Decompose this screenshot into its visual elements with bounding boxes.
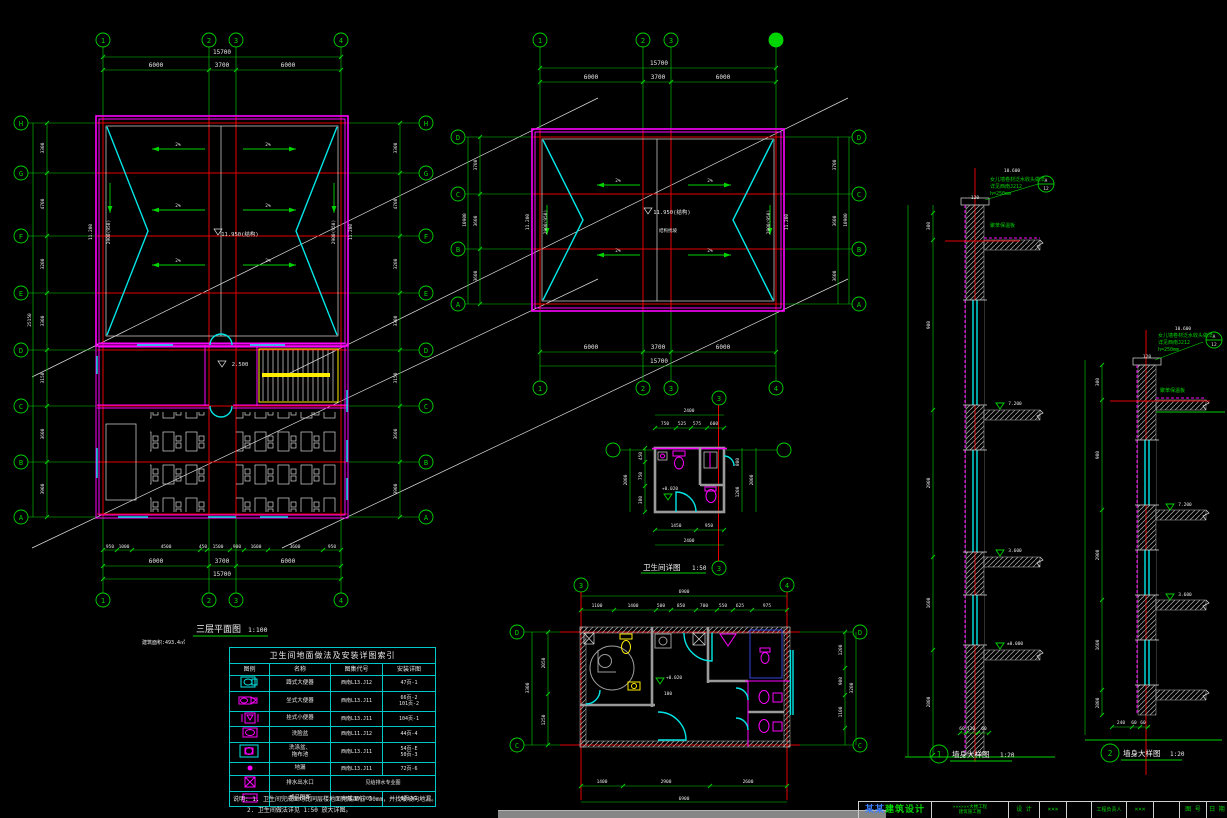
svg-text:6000: 6000 [584, 74, 599, 81]
svg-text:2800: 2800 [926, 696, 932, 707]
svg-text:三层平面图: 三层平面图 [196, 624, 241, 635]
svg-text:G: G [19, 170, 23, 178]
svg-text:2: 2 [641, 385, 645, 393]
roof-valley-right [296, 127, 337, 335]
svg-text:2400: 2400 [684, 538, 695, 544]
svg-text:575: 575 [693, 421, 701, 427]
svg-text:1000: 1000 [119, 544, 130, 550]
svg-text:3700: 3700 [215, 62, 230, 69]
svg-text:墙身大样图: 墙身大样图 [1123, 748, 1161, 758]
svg-text:120: 120 [971, 195, 979, 201]
svg-text:2%: 2% [265, 203, 271, 209]
svg-text:1:100: 1:100 [248, 626, 268, 634]
svg-text:3700: 3700 [473, 159, 479, 170]
svg-text:B: B [19, 459, 23, 467]
drain-outlet-icon [238, 776, 262, 788]
small-detail-title: 卫生间详图 1:50 [641, 562, 707, 573]
svg-text:3200: 3200 [849, 682, 855, 693]
svg-text:525: 525 [678, 421, 686, 427]
mid-plan-roof: 2% 2% 2% 2% 11.950(结构) 结构找坡 11.200 2900(… [525, 129, 790, 311]
svg-text:4: 4 [339, 597, 343, 605]
svg-text:女儿墙卷材泛水收头做法: 女儿墙卷材泛水收头做法 [990, 176, 1045, 183]
svg-text:3: 3 [234, 597, 238, 605]
svg-text:2400: 2400 [684, 408, 695, 414]
svg-text:4700: 4700 [393, 198, 399, 209]
svg-text:1200: 1200 [838, 644, 844, 655]
legend-note-2: 2. 卫生间做法详见 1:50 放大详图。 [247, 805, 352, 814]
svg-text:750: 750 [638, 472, 644, 480]
svg-text:B: B [456, 246, 460, 254]
wall-section-1: 7.200 3.600 ±0.000 10.600 女儿墙卷材泛水收头做法 详见… [905, 168, 1055, 763]
svg-text:2900(950): 2900(950) [543, 210, 549, 234]
svg-text:900: 900 [233, 544, 241, 550]
left-plan-dims-left: 3300 4700 3200 3300 3150 3600 3900 25150 [27, 121, 49, 519]
svg-text:2: 2 [1108, 749, 1113, 758]
svg-text:h=250mm: h=250mm [1158, 347, 1179, 353]
svg-text:3200: 3200 [393, 258, 399, 269]
legend-header: 图例 [230, 664, 270, 676]
svg-text:2900: 2900 [1095, 549, 1101, 560]
left-plan-floor: 2.500 [96, 334, 348, 518]
svg-text:4700: 4700 [40, 198, 46, 209]
svg-text:H: H [19, 120, 23, 128]
svg-text:2900(950): 2900(950) [766, 210, 772, 234]
svg-text:聚苯保温板: 聚苯保温板 [990, 222, 1015, 229]
titleblock-cell: ××× [1127, 802, 1154, 818]
svg-text:6000: 6000 [281, 558, 296, 565]
stair [259, 349, 338, 402]
company-logo: 某某建筑设计 [859, 802, 932, 818]
svg-text:10900: 10900 [843, 213, 849, 227]
legend-row: 排水出水口 见给排水专业图 [230, 776, 436, 792]
svg-text:900: 900 [1095, 451, 1101, 459]
level-symbol [644, 208, 652, 214]
project-name: ××××××大楼工程 建筑施工图 [932, 802, 1009, 818]
svg-text:h=250mm: h=250mm [990, 191, 1011, 197]
svg-text:1600: 1600 [251, 544, 262, 550]
floor-slabs [945, 238, 1043, 660]
svg-text:D: D [19, 347, 23, 355]
svg-text:2900: 2900 [926, 477, 932, 488]
walls [655, 448, 724, 512]
svg-text:E: E [424, 290, 428, 298]
svg-text:3: 3 [717, 395, 721, 403]
svg-text:2050: 2050 [541, 657, 547, 668]
svg-text:2: 2 [207, 597, 211, 605]
small-detail-dims: 2400 750 525 575 600 450 750 380 2000 80… [623, 408, 756, 545]
left-plan-dims-bottom: 950 1000 4500 450 1500 900 1600 3600 950… [101, 544, 343, 581]
svg-text:C: C [515, 742, 519, 750]
left-plan-dims-top: 15700 6000 3700 6000 [101, 49, 343, 72]
left-plan-roof: 2% 2% 2% 2% 2% 2% 11.950(结构) 11.200 2900… [88, 116, 354, 346]
floor-drain-icon [238, 763, 262, 773]
titleblock-cell: 图 号 [1180, 802, 1207, 818]
svg-text:F: F [424, 233, 428, 241]
titleblock-cell: 日 期 [1207, 802, 1227, 818]
svg-text:2900(950): 2900(950) [331, 220, 337, 244]
svg-text:2900: 2900 [661, 779, 672, 785]
roof-valley-left [107, 127, 148, 335]
legend-header: 图集代号 [331, 664, 383, 676]
svg-text:3150: 3150 [40, 372, 46, 383]
svg-text:C: C [456, 191, 460, 199]
svg-text:3700: 3700 [832, 159, 838, 170]
svg-text:3150: 3150 [393, 372, 399, 383]
title-block: 某某建筑设计 ××××××大楼工程 建筑施工图 设 计 ××× 工程负责人 ××… [858, 801, 1227, 818]
legend-row: 蹲式大便器 西南L13.J12 47页-1 [230, 676, 436, 692]
sheet-border-band [498, 810, 886, 818]
legend-row: 洗脸盆 西南L11.J12 44页-4 [230, 727, 436, 743]
svg-text:1250: 1250 [541, 714, 547, 725]
titleblock-cell [1154, 802, 1180, 818]
legend-title: 卫生间地面做法及安装详图索引 [230, 648, 436, 664]
svg-text:120: 120 [1143, 354, 1151, 360]
svg-text:3600: 3600 [473, 215, 479, 226]
svg-text:1450: 1450 [671, 523, 682, 529]
svg-text:850: 850 [677, 603, 685, 609]
svg-text:12: 12 [1043, 186, 1049, 192]
svg-text:2%: 2% [175, 258, 181, 264]
svg-text:A: A [424, 514, 429, 522]
wc [759, 720, 769, 733]
svg-text:B: B [424, 459, 428, 467]
svg-text:2.500: 2.500 [232, 362, 249, 368]
svg-text:2%: 2% [175, 142, 181, 148]
cad-viewport: 1 2 3 4 1 2 3 4 H G F E D C B A H G F E [0, 0, 1227, 818]
level-symbol [656, 678, 664, 684]
floor-slabs [1110, 398, 1225, 700]
svg-text:3: 3 [669, 385, 673, 393]
svg-text:625: 625 [736, 603, 744, 609]
svg-text:卫生间详图: 卫生间详图 [643, 562, 681, 572]
svg-text:D: D [858, 629, 862, 637]
legend-header: 安装详图 [383, 664, 436, 676]
svg-text:6000: 6000 [149, 62, 164, 69]
svg-text:100: 100 [664, 691, 672, 697]
legend-header: 名称 [270, 664, 331, 676]
svg-text:750: 750 [661, 421, 669, 427]
svg-text:3300: 3300 [40, 142, 46, 153]
svg-text:11.200: 11.200 [784, 214, 790, 231]
mid-plan: 1 2 3 4 1 2 3 4 D C B A D C B A 15700 60… [451, 33, 866, 395]
wheelchair-symbol [590, 646, 634, 690]
svg-text:60: 60 [1140, 720, 1146, 726]
svg-text:3: 3 [669, 37, 673, 45]
svg-text:+0.020: +0.020 [666, 675, 683, 681]
svg-text:3.600: 3.600 [1008, 548, 1022, 554]
svg-text:7.200: 7.200 [1178, 502, 1192, 508]
svg-text:1400: 1400 [628, 603, 639, 609]
door-arcs [586, 633, 748, 740]
desk-rows-right [236, 412, 336, 512]
svg-text:±0.000: ±0.000 [1007, 641, 1024, 647]
svg-text:H: H [424, 120, 428, 128]
toilet-icon [237, 693, 263, 707]
desk-rows-left [150, 412, 207, 512]
svg-text:1: 1 [538, 385, 542, 393]
svg-text:A: A [1213, 334, 1216, 340]
svg-text:2800: 2800 [1095, 697, 1101, 708]
svg-text:500: 500 [657, 603, 665, 609]
titleblock-cell: 设 计 [1009, 802, 1040, 818]
svg-text:2: 2 [641, 37, 645, 45]
svg-text:6000: 6000 [584, 344, 599, 351]
svg-text:950: 950 [106, 544, 114, 550]
svg-text:3.600: 3.600 [1178, 592, 1192, 598]
svg-text:11.200: 11.200 [525, 214, 531, 231]
left-plan-grid-bubbles-right: H G F E D C B A [419, 116, 433, 524]
svg-text:2000: 2000 [623, 474, 629, 485]
svg-text:120: 120 [967, 726, 975, 732]
svg-text:3600: 3600 [393, 428, 399, 439]
svg-text:2%: 2% [615, 178, 621, 184]
svg-text:1400: 1400 [597, 779, 608, 785]
svg-text:3: 3 [579, 582, 583, 590]
legend-row: 挂式小便器 西南L13.J11 104页-1 [230, 711, 436, 727]
svg-text:3700: 3700 [651, 344, 666, 351]
svg-text:女儿墙卷材泛水收头做法: 女儿墙卷材泛水收头做法 [1158, 332, 1213, 339]
cad-drawing: 1 2 3 4 1 2 3 4 H G F E D C B A H G F E [0, 0, 1227, 818]
svg-text:3600: 3600 [40, 428, 46, 439]
svg-text:F: F [19, 233, 23, 241]
svg-text:1100: 1100 [838, 706, 844, 717]
svg-text:900: 900 [838, 677, 844, 685]
legend-row: 洗涤盆、拖布池 西南L13.J11 54页-E50页-3 [230, 742, 436, 762]
svg-text:11.950(结构): 11.950(结构) [653, 208, 691, 216]
svg-text:950: 950 [328, 544, 336, 550]
mop-pool-icon [237, 744, 263, 758]
svg-text:1:50: 1:50 [692, 565, 707, 572]
legend-note-1: 说明: 1. 卫生间完成面均比同层楼地面完成面低 30mm，并找坡坡向地漏。 [233, 794, 437, 803]
svg-text:15700: 15700 [650, 358, 668, 365]
svg-text:450: 450 [638, 452, 644, 460]
titleblock-cell: 工程负责人 [1092, 802, 1127, 818]
svg-text:4: 4 [774, 37, 778, 45]
left-plan-title: 三层平面图 1:100 建筑面积:493.4㎡ [142, 624, 268, 646]
small-detail: 3 3 +0.020 2400 750 [606, 391, 791, 575]
svg-text:2000: 2000 [749, 474, 755, 485]
svg-text:10.600: 10.600 [1004, 168, 1021, 174]
svg-text:11.200: 11.200 [348, 224, 354, 241]
svg-text:2%: 2% [615, 248, 621, 254]
svg-text:D: D [515, 629, 519, 637]
door-arc [676, 492, 696, 512]
svg-text:3300: 3300 [40, 315, 46, 326]
svg-text:7.200: 7.200 [1008, 401, 1022, 407]
svg-text:6000: 6000 [149, 558, 164, 565]
svg-text:A: A [456, 301, 461, 309]
legend-row: 坐式大便器 西南L13.J11 66页-2101页-2 [230, 691, 436, 711]
svg-text:1500: 1500 [213, 544, 224, 550]
titleblock-cell: ××× [1040, 802, 1067, 818]
titleblock-cell [1067, 802, 1092, 818]
svg-text:A: A [857, 301, 862, 309]
svg-text:C: C [857, 191, 861, 199]
svg-text:详见西南J212: 详见西南J212 [1158, 339, 1190, 346]
svg-text:D: D [857, 134, 861, 142]
svg-text:3300: 3300 [393, 315, 399, 326]
left-plan: 1 2 3 4 1 2 3 4 H G F E D C B A H G F E [14, 33, 433, 646]
svg-text:6000: 6000 [716, 344, 731, 351]
svg-text:11.950(结构): 11.950(结构) [221, 230, 259, 238]
fixtures [584, 630, 782, 740]
svg-text:700: 700 [700, 603, 708, 609]
svg-text:2%: 2% [265, 258, 271, 264]
svg-text:C: C [19, 403, 23, 411]
svg-text:25150: 25150 [27, 313, 33, 327]
svg-text:900: 900 [926, 321, 932, 329]
svg-text:3700: 3700 [651, 74, 666, 81]
roof-slope-arrows: 2% 2% 2% 2% 2% 2% [108, 142, 337, 267]
window [791, 650, 794, 715]
level-symbol [218, 361, 226, 367]
left-plan-grid-bubbles-bottom: 1 2 3 4 [96, 593, 348, 607]
svg-text:6000: 6000 [281, 62, 296, 69]
svg-text:2900(950): 2900(950) [106, 220, 112, 244]
svg-text:A: A [1045, 178, 1048, 184]
svg-text:240: 240 [1117, 720, 1125, 726]
svg-text:10900: 10900 [462, 213, 468, 227]
svg-text:550: 550 [719, 603, 727, 609]
svg-text:1100: 1100 [592, 603, 603, 609]
svg-text:6900: 6900 [679, 796, 690, 802]
fixture-legend-table: 卫生间地面做法及安装详图索引 图例 名称 图集代号 安装详图 蹲式大便器 西南L… [229, 647, 435, 807]
svg-text:2%: 2% [265, 142, 271, 148]
svg-text:C: C [858, 742, 862, 750]
svg-text:3200: 3200 [40, 258, 46, 269]
svg-text:3600: 3600 [473, 270, 479, 281]
svg-text:15700: 15700 [213, 49, 231, 56]
svg-text:15700: 15700 [650, 60, 668, 67]
svg-text:300: 300 [1095, 378, 1101, 386]
svg-text:3600: 3600 [832, 215, 838, 226]
svg-text:B: B [857, 246, 861, 254]
svg-text:聚苯保温板: 聚苯保温板 [1160, 387, 1185, 394]
svg-text:800: 800 [735, 458, 741, 466]
svg-text:D: D [456, 134, 460, 142]
big-detail: 3 4 D C D C [510, 578, 867, 802]
svg-text:2: 2 [207, 37, 211, 45]
left-plan-grid-bubbles-left: H G F E D C B A [14, 116, 28, 524]
urinal-icon [238, 712, 262, 724]
squat-toilet-icon [238, 676, 262, 688]
svg-text:E: E [19, 290, 23, 298]
washbasin-icon [238, 727, 262, 739]
svg-text:2%: 2% [707, 178, 713, 184]
svg-text:2%: 2% [707, 248, 713, 254]
fixtures [658, 451, 734, 512]
roof-valley-left [543, 140, 583, 300]
section2-title: 2 墙身大样图 1:20 [1101, 744, 1185, 762]
drain-symbol [720, 634, 736, 646]
svg-text:975: 975 [763, 603, 771, 609]
svg-text:+0.020: +0.020 [662, 486, 679, 492]
left-plan-grid-bubbles-top: 1 2 3 4 [96, 33, 348, 47]
svg-text:3900: 3900 [40, 483, 46, 494]
svg-text:1600: 1600 [1095, 639, 1101, 650]
svg-text:300: 300 [926, 222, 932, 230]
door-arc [724, 456, 734, 466]
svg-text:60: 60 [1131, 720, 1137, 726]
left-plan-dims-right: 3300 4700 3200 3300 3150 3600 3900 [393, 121, 402, 519]
svg-text:6000: 6000 [716, 74, 731, 81]
legend-row: 地漏 西南L13.J11 72页-6 [230, 762, 436, 776]
svg-text:11.200: 11.200 [88, 224, 94, 241]
wall-section-2: 7.200 3.600 10.600 女儿墙卷材泛水收头做法 详见西南J212 … [1085, 326, 1225, 775]
svg-text:3: 3 [717, 565, 721, 573]
svg-text:G: G [424, 170, 428, 178]
svg-text:D: D [424, 347, 428, 355]
windows [1135, 440, 1159, 685]
svg-text:3: 3 [234, 37, 238, 45]
svg-text:3700: 3700 [215, 558, 230, 565]
svg-text:4: 4 [774, 385, 778, 393]
svg-text:1200: 1200 [735, 486, 741, 497]
level-markers: 7.200 3.600 ±0.000 [996, 401, 1023, 649]
svg-text:2600: 2600 [743, 779, 754, 785]
svg-text:1600: 1600 [926, 597, 932, 608]
svg-text:3600: 3600 [832, 270, 838, 281]
svg-text:4: 4 [785, 582, 789, 590]
wc [759, 691, 769, 704]
svg-text:10.600: 10.600 [1175, 326, 1192, 332]
svg-text:1:20: 1:20 [1000, 752, 1015, 759]
svg-text:600: 600 [710, 421, 718, 427]
svg-text:建筑面积:493.4㎡: 建筑面积:493.4㎡ [142, 639, 185, 646]
level-symbol [664, 494, 672, 500]
svg-text:3600: 3600 [290, 544, 301, 550]
svg-text:墙身大样图: 墙身大样图 [952, 749, 990, 759]
svg-text:1:20: 1:20 [1170, 751, 1185, 758]
svg-text:2%: 2% [175, 203, 181, 209]
svg-text:60: 60 [959, 726, 965, 732]
svg-text:6900: 6900 [679, 589, 690, 595]
svg-text:1: 1 [538, 37, 542, 45]
big-detail-dims: 6900 1100 1400 500 850 700 550 625 975 2… [525, 589, 856, 802]
svg-text:3900: 3900 [393, 483, 399, 494]
svg-text:1: 1 [101, 597, 105, 605]
urinal-screen [750, 630, 782, 678]
urinal [761, 653, 769, 664]
svg-text:380: 380 [638, 496, 644, 504]
svg-text:450: 450 [199, 544, 207, 550]
svg-text:1: 1 [101, 37, 105, 45]
svg-text:C: C [424, 403, 428, 411]
svg-text:60: 60 [981, 726, 987, 732]
svg-text:结构找坡: 结构找坡 [659, 227, 677, 234]
svg-text:15700: 15700 [213, 571, 231, 578]
svg-text:3300: 3300 [525, 682, 531, 693]
svg-text:A: A [19, 514, 24, 522]
svg-text:1: 1 [937, 750, 942, 759]
svg-text:12: 12 [1211, 342, 1217, 348]
svg-text:详见西南J212: 详见西南J212 [990, 183, 1022, 190]
svg-text:4500: 4500 [161, 544, 172, 550]
svg-text:4: 4 [339, 37, 343, 45]
svg-text:950: 950 [705, 523, 713, 529]
svg-text:3300: 3300 [393, 142, 399, 153]
